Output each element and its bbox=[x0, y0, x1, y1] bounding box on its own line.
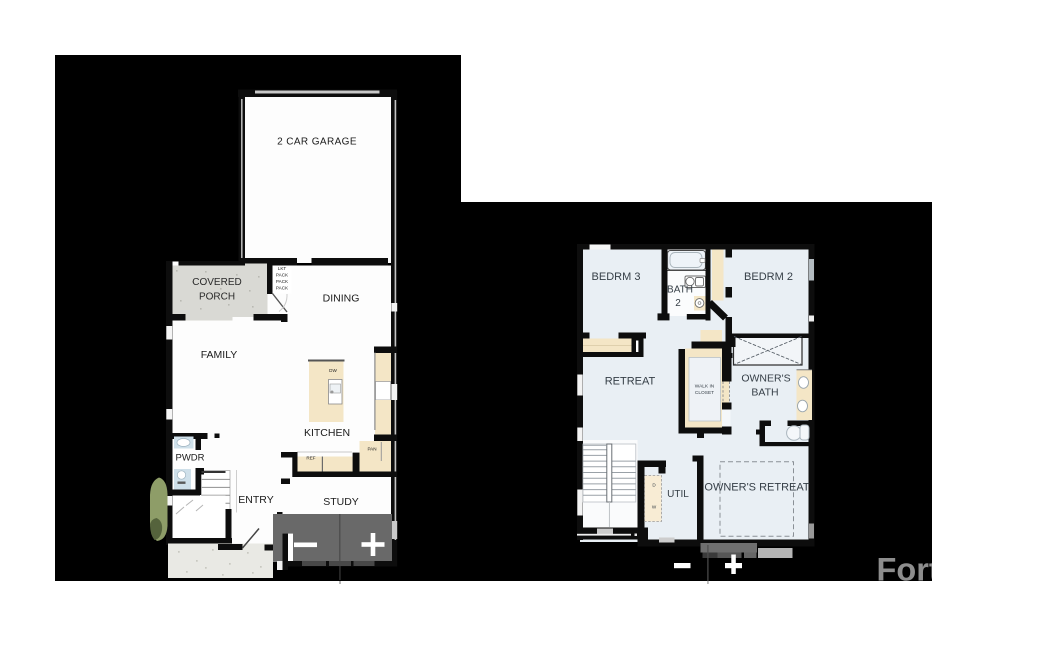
svg-text:STUDY: STUDY bbox=[323, 496, 359, 508]
svg-text:REF: REF bbox=[306, 456, 315, 461]
svg-text:BATH: BATH bbox=[667, 285, 693, 296]
svg-text:PACK: PACK bbox=[276, 279, 289, 284]
svg-text:WALK IN: WALK IN bbox=[695, 384, 715, 390]
svg-text:BEDRM 2: BEDRM 2 bbox=[744, 271, 793, 283]
svg-text:COVERED: COVERED bbox=[192, 277, 241, 288]
svg-text:DW: DW bbox=[329, 368, 337, 373]
svg-text:LKT: LKT bbox=[278, 266, 287, 271]
svg-text:PWDR: PWDR bbox=[175, 453, 204, 464]
svg-text:BATH: BATH bbox=[751, 387, 778, 399]
svg-text:KITCHEN: KITCHEN bbox=[304, 427, 350, 439]
svg-text:PACK: PACK bbox=[276, 286, 289, 291]
svg-text:2: 2 bbox=[675, 298, 681, 309]
svg-text:FAMILY: FAMILY bbox=[201, 349, 238, 361]
svg-text:DINING: DINING bbox=[323, 293, 360, 305]
svg-text:CLOSET: CLOSET bbox=[695, 390, 714, 396]
svg-text:OWNER'S: OWNER'S bbox=[741, 373, 790, 385]
svg-text:PACK: PACK bbox=[276, 273, 289, 278]
svg-text:BEDRM 3: BEDRM 3 bbox=[592, 271, 641, 283]
svg-text:UTIL: UTIL bbox=[667, 489, 689, 500]
svg-text:OWNER'S RETREAT: OWNER'S RETREAT bbox=[704, 482, 809, 494]
svg-text:2 CAR GARAGE: 2 CAR GARAGE bbox=[277, 137, 357, 148]
svg-text:ENTRY: ENTRY bbox=[238, 494, 273, 506]
svg-text:RETREAT: RETREAT bbox=[605, 376, 656, 388]
svg-text:W: W bbox=[652, 505, 657, 510]
svg-text:PORCH: PORCH bbox=[199, 292, 235, 303]
svg-text:PAN: PAN bbox=[367, 446, 376, 451]
